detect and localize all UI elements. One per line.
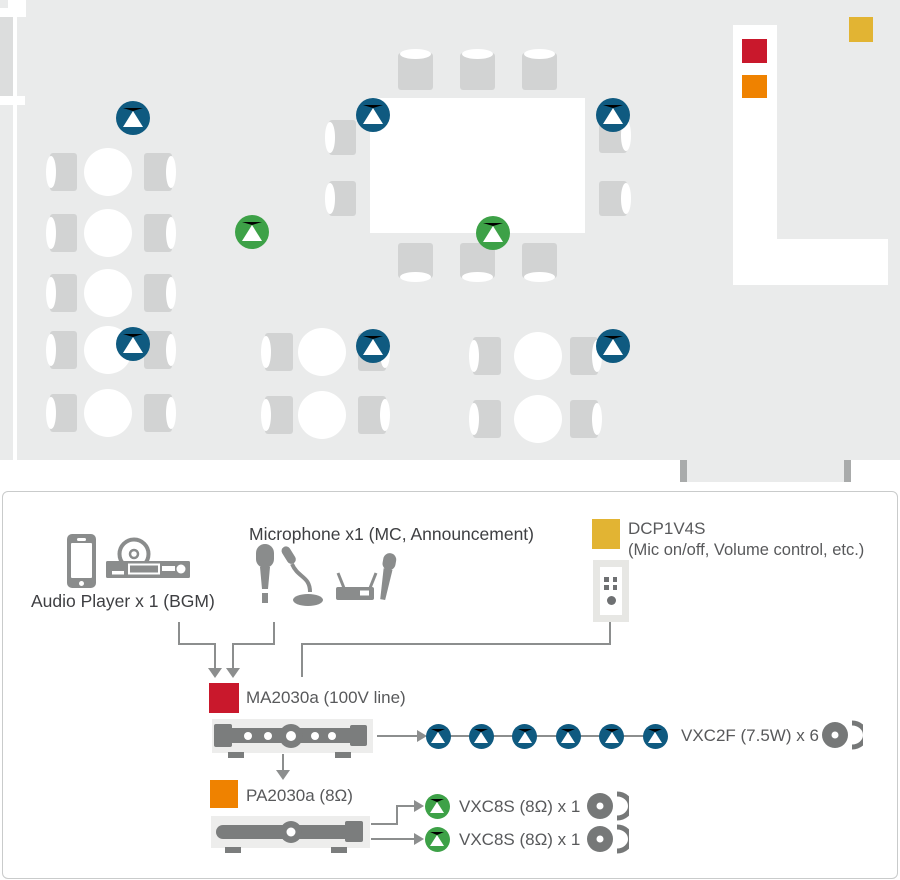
amp-foot (225, 847, 241, 853)
chair (358, 396, 386, 434)
line-pa-out-upper (371, 823, 398, 825)
vxc2f-chain-speaker-icon (643, 724, 668, 749)
speaker-triangle (242, 222, 262, 241)
chair (265, 333, 293, 371)
smartphone-icon (67, 534, 96, 588)
round-table (514, 395, 562, 443)
amp-cap (350, 725, 367, 746)
line-audioplayer-down (178, 622, 180, 644)
rect-table (370, 98, 585, 233)
microphone-label: Microphone x1 (MC, Announcement) (249, 524, 534, 545)
ceiling-speaker-icon (116, 101, 150, 135)
chair-back (166, 334, 176, 367)
chair (50, 274, 77, 312)
chair (570, 337, 598, 375)
pa-amp-label: PA2030a (8Ω) (246, 786, 353, 807)
ma-color-square (209, 683, 239, 713)
counter-l-horizontal (733, 239, 888, 285)
chair-back (524, 272, 554, 282)
ceiling-speaker-icon (356, 98, 390, 132)
vxc2f-chain-speaker-icon (512, 724, 537, 749)
door-post (844, 460, 851, 482)
chair-back (462, 49, 492, 59)
chair (144, 394, 172, 432)
pa-color-square (210, 780, 238, 808)
vxc2f-speaker-icon (819, 719, 863, 751)
round-table (514, 332, 562, 380)
amp-cap (345, 821, 363, 842)
chair (398, 53, 433, 90)
line-dcp-over (301, 643, 611, 645)
chair-back (400, 49, 430, 59)
line-mic-over (232, 643, 275, 645)
wall-controller-square (849, 17, 873, 42)
chair-back (46, 334, 56, 367)
chair (522, 243, 557, 278)
phone-speaker-slot (77, 538, 86, 541)
chair-back (166, 217, 176, 250)
chair (144, 274, 172, 312)
chair-back (524, 49, 554, 59)
chair (460, 53, 495, 90)
round-table (298, 391, 346, 439)
cd-player-icon (106, 537, 192, 583)
ma-amp-square (742, 39, 767, 63)
line-pa-out-upper-up (396, 805, 398, 825)
chair-back (46, 156, 56, 189)
speaker-triangle (123, 334, 143, 353)
speaker-triangle (363, 105, 383, 124)
round-table (84, 269, 132, 317)
chair-back (166, 156, 176, 189)
line-dcp-into-ma (301, 643, 303, 677)
phone-screen (71, 543, 92, 578)
dcp-model-label: DCP1V4S (628, 519, 705, 540)
dcp-color-square (592, 519, 620, 549)
chair (265, 396, 293, 434)
vxc8s-label-2: VXC8S (8Ω) x 1 (459, 830, 580, 851)
ceiling-speaker-icon (596, 329, 630, 363)
panel-face (600, 567, 622, 615)
phone-home-button (79, 581, 84, 586)
chair-back (261, 336, 271, 369)
pa-amp-icon (211, 816, 370, 848)
vxc8s-speaker-unit-icon (425, 827, 450, 852)
microphones-icon (248, 544, 400, 610)
line-audioplayer-over (178, 643, 216, 645)
amp-knob (311, 732, 319, 740)
line-mic-down (273, 622, 275, 644)
pa-amp-square (742, 75, 767, 98)
chair (473, 400, 501, 438)
chair-back (166, 277, 176, 310)
chair-back (469, 340, 479, 373)
amp-foot (331, 847, 347, 853)
surface-speaker-icon (235, 215, 269, 249)
speaker-triangle (518, 729, 532, 743)
chair (50, 153, 77, 191)
chair (144, 214, 172, 252)
doorway (680, 460, 851, 482)
page: Audio Player x 1 (BGM) Microphone x1 (MC… (0, 0, 900, 880)
chair-back (325, 183, 335, 213)
chair-back (46, 397, 56, 430)
ceiling-speaker-icon (116, 327, 150, 361)
round-table (84, 389, 132, 437)
panel-button (604, 577, 609, 582)
speaker-triangle (648, 729, 662, 743)
line-pa-out-lower (371, 838, 416, 840)
chair (599, 181, 627, 216)
chair (50, 214, 77, 252)
ma-amp-label: MA2030a (100V line) (246, 688, 406, 709)
wall-segment (0, 16, 13, 97)
chair-back (380, 399, 390, 432)
chair-back (621, 183, 631, 213)
chair (473, 337, 501, 375)
chair (144, 153, 172, 191)
dcp-desc-label: (Mic on/off, Volume control, etc.) (628, 540, 864, 560)
panel-button (613, 585, 618, 590)
chair (570, 400, 598, 438)
arrowhead-vxc8s-2 (414, 833, 424, 845)
chair-back (46, 277, 56, 310)
speaker-triangle (430, 832, 444, 846)
arrowhead-ma-2 (226, 668, 240, 678)
speaker-triangle (603, 105, 623, 124)
floor-plan (0, 0, 900, 460)
chair (50, 331, 77, 369)
speaker-triangle (430, 799, 444, 813)
vxc8s-label-1: VXC8S (8Ω) x 1 (459, 797, 580, 818)
line-into-ma-1 (214, 643, 216, 670)
round-table (84, 209, 132, 257)
chair-back (462, 272, 492, 282)
surface-speaker-icon (476, 216, 510, 250)
vxc2f-chain-speaker-icon (556, 724, 581, 749)
speaker-triangle (123, 108, 143, 127)
vxc8s-speaker-icon-2 (585, 824, 629, 855)
amp-cap (214, 724, 232, 747)
chair (329, 181, 356, 216)
speaker-triangle (603, 336, 623, 355)
ceiling-speaker-icon (356, 329, 390, 363)
chair (522, 53, 557, 90)
arrowhead-ma-1 (208, 668, 222, 678)
amp-knob (264, 732, 272, 740)
chair-back (166, 397, 176, 430)
chair-back (46, 217, 56, 250)
line-into-ma-2 (232, 643, 234, 670)
panel-button (604, 585, 609, 590)
chair-back (592, 403, 602, 436)
chair (398, 243, 433, 278)
audio-player-label: Audio Player x 1 (BGM) (31, 591, 215, 612)
chair (50, 394, 77, 432)
wall-line (13, 9, 17, 460)
speaker-triangle (474, 729, 488, 743)
arrowhead-vxc8s-1 (414, 800, 424, 812)
door-post (680, 460, 687, 482)
round-table (298, 328, 346, 376)
vxc2f-label: VXC2F (7.5W) x 6 (681, 726, 819, 747)
arrowhead-pa (276, 770, 290, 780)
amp-main-knob (280, 821, 302, 843)
amp-main-knob (279, 724, 303, 748)
speaker-triangle (363, 336, 383, 355)
amp-foot (228, 752, 244, 758)
line-dcp-down (609, 622, 611, 645)
vxc2f-chain-speaker-icon (426, 724, 451, 749)
panel-knob (607, 596, 616, 605)
ma-amp-icon (212, 719, 373, 753)
vxc8s-speaker-icon-1 (585, 791, 629, 822)
speaker-triangle (431, 729, 445, 743)
speaker-triangle (605, 729, 619, 743)
amp-knob (328, 732, 336, 740)
round-table (84, 148, 132, 196)
vxc8s-speaker-unit-icon (425, 794, 450, 819)
line-ma-to-vxc2f (377, 735, 419, 737)
wall-controller-icon (593, 560, 629, 622)
panel-button (613, 577, 618, 582)
chair (329, 120, 356, 155)
vxc2f-chain-speaker-icon (599, 724, 624, 749)
line-pa-out-upper-over (396, 805, 416, 807)
ceiling-speaker-icon (596, 98, 630, 132)
chair-back (261, 399, 271, 432)
amp-foot (335, 752, 351, 758)
chair-back (469, 403, 479, 436)
chair-back (325, 122, 335, 152)
speaker-triangle (561, 729, 575, 743)
amp-knob (244, 732, 252, 740)
vxc2f-chain-speaker-icon (469, 724, 494, 749)
speaker-triangle (483, 223, 503, 242)
chair-back (400, 272, 430, 282)
